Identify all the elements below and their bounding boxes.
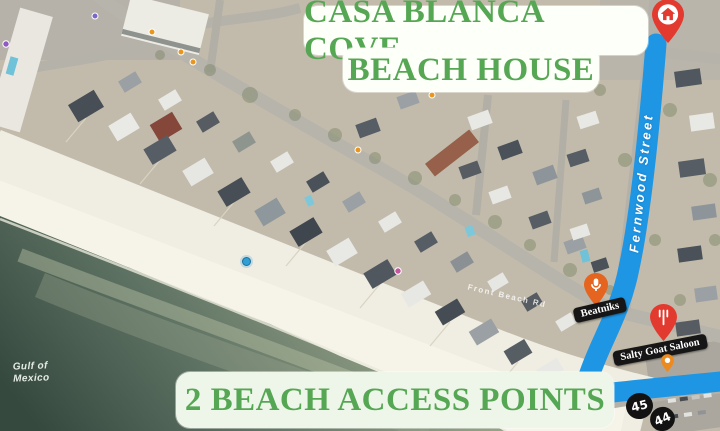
footer-banner: 2 BEACH ACCESS POINTS xyxy=(176,372,614,428)
shield-number: 44 xyxy=(652,409,673,429)
footer-text: 2 BEACH ACCESS POINTS xyxy=(185,382,605,419)
water-body-label: Gulf of Mexico xyxy=(13,360,50,384)
shield-number: 45 xyxy=(630,397,650,415)
secondary-orange-pin xyxy=(661,354,674,372)
destination-home-pin xyxy=(652,0,684,43)
title-text-line2: BEACH HOUSE xyxy=(348,52,595,89)
water-label-line2: Mexico xyxy=(13,372,50,385)
water-label-line1: Gulf of xyxy=(13,360,50,373)
satellite-map: Gulf of Mexico Fernwood Street Front Bea… xyxy=(0,0,720,431)
salty-goat-saloon-pin xyxy=(650,304,677,341)
title-banner-line2: BEACH HOUSE xyxy=(343,48,599,92)
location-dot xyxy=(242,257,251,266)
